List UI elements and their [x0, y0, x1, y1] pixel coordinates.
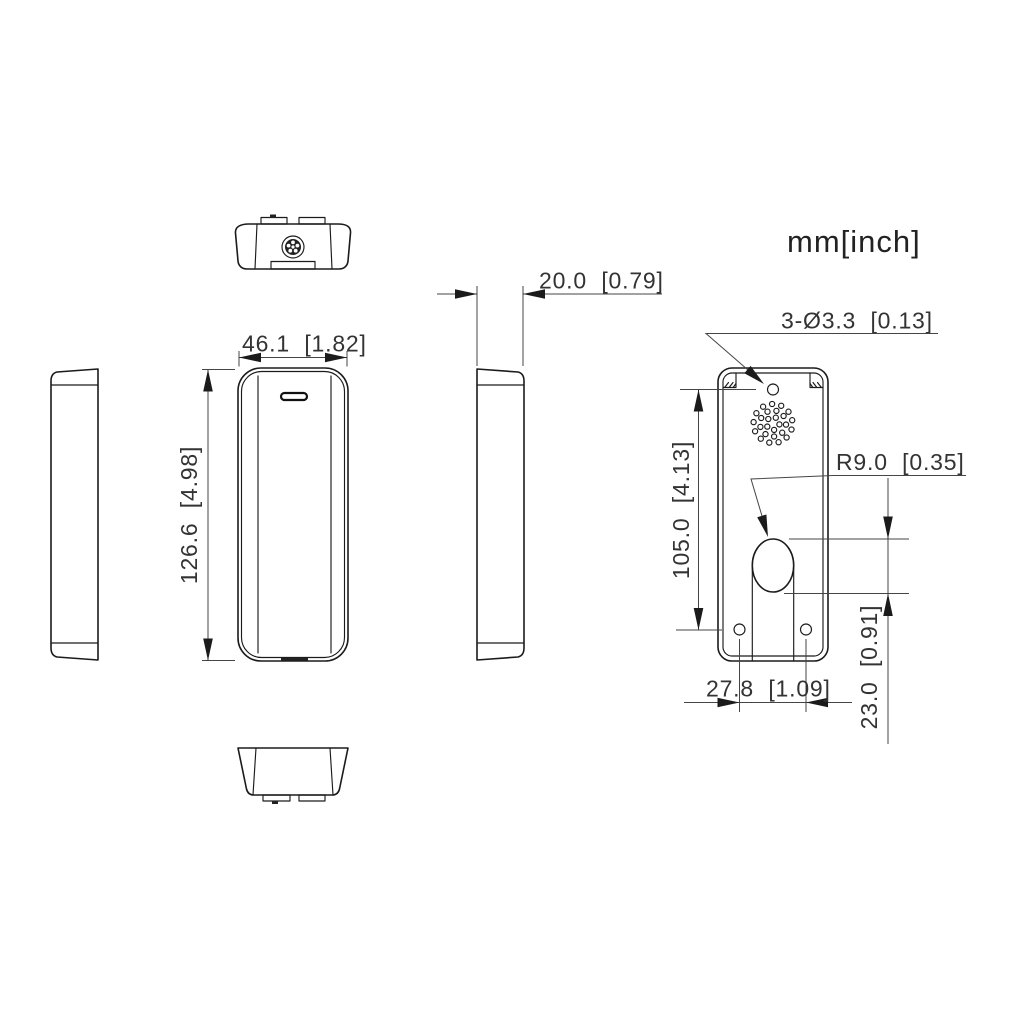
dim-height-text: 126.6 [4.98]	[176, 446, 202, 584]
dim-height-extensions	[202, 370, 235, 661]
drawing-svg: mm[inch]	[0, 0, 1024, 1024]
back-outer	[718, 368, 828, 661]
top-tab-left	[261, 218, 287, 225]
corner-rib-right	[810, 373, 823, 388]
dim-cable-hole-height: 23.0 [0.91]	[784, 478, 909, 744]
dim-cable-height-extensions	[784, 539, 909, 594]
top-tab-right	[299, 218, 325, 225]
side-view-right	[477, 369, 524, 660]
speaker-hole	[758, 424, 763, 429]
top-view	[235, 215, 350, 270]
arrow-up-icon	[203, 370, 213, 392]
speaker-hole	[765, 409, 770, 414]
dim-hole-spacing-horizontal: 27.8 [1.09]	[684, 639, 852, 712]
mounting-holes-note-text: 3-Ø3.3 [0.13]	[781, 308, 933, 334]
speaker-hole	[772, 434, 777, 439]
top-view-side-line-left	[255, 224, 257, 269]
mounting-hole-top	[768, 384, 779, 395]
arrow-up-icon	[883, 594, 893, 617]
bottom-tab-bump	[272, 801, 278, 805]
bottom-side-line-left	[253, 748, 256, 795]
bottom-tab-left	[263, 795, 290, 801]
bottom-side-line-right	[330, 748, 333, 795]
speaker-holes	[751, 401, 795, 445]
speaker-hole	[786, 409, 791, 414]
speaker-hole	[770, 401, 775, 406]
speaker-hole	[766, 416, 771, 421]
leader-arrow-icon	[757, 515, 768, 538]
front-inner	[242, 372, 345, 658]
speaker-hole	[776, 440, 781, 445]
top-tab-bump	[270, 215, 276, 219]
speaker-hole	[790, 418, 795, 423]
corner-rib-left	[723, 373, 736, 388]
cable-radius-leader	[751, 476, 833, 517]
front-view	[238, 368, 348, 661]
speaker-hole	[751, 420, 756, 425]
dim-vspacing-text: 105.0 [4.13]	[668, 441, 694, 579]
cable-hole-slot	[752, 539, 793, 661]
mounting-holes-leader	[706, 334, 938, 371]
side-view-left	[51, 369, 98, 660]
top-view-side-line-right	[330, 224, 332, 269]
units-label: mm[inch]	[787, 224, 921, 259]
dim-cable-height-text: 23.0 [0.91]	[856, 605, 882, 730]
bottom-view	[238, 748, 348, 804]
mounting-hole-bottom-left	[734, 624, 745, 635]
dim-depth-text: 20.0 [0.79]	[539, 268, 664, 294]
speaker-hole	[784, 435, 789, 440]
tamper-screw	[282, 236, 304, 258]
back-inner	[723, 373, 823, 656]
mounting-hole-bottom-right	[801, 624, 812, 635]
speaker-hole	[779, 403, 784, 408]
speaker-hole	[758, 436, 763, 441]
speaker-hole	[763, 432, 768, 437]
arrow-down-icon	[883, 517, 893, 540]
dimension-drawing: mm[inch]	[0, 0, 1024, 1024]
dim-width-text: 46.1 [1.82]	[242, 331, 367, 357]
speaker-hole	[780, 430, 785, 435]
cable-hole	[752, 539, 793, 592]
speaker-hole	[783, 422, 788, 427]
speaker-hole	[761, 404, 766, 409]
speaker-hole	[767, 440, 772, 445]
side-left-body	[51, 369, 98, 660]
arrow-down-icon	[694, 608, 704, 630]
speaker-hole	[765, 424, 770, 429]
speaker-hole	[753, 429, 758, 434]
speaker-hole	[789, 427, 794, 432]
speaker-hole	[772, 427, 777, 432]
speaker-hole	[777, 422, 782, 427]
speaker-hole	[773, 415, 778, 420]
speaker-hole	[754, 411, 759, 416]
dim-depth-extensions	[477, 286, 523, 366]
arrow-up-icon	[694, 390, 704, 412]
dim-hole-spacing-vertical: 105.0 [4.13]	[668, 390, 756, 631]
note-cable-hole-radius: R9.0 [0.35]	[751, 449, 966, 537]
dim-depth: 20.0 [0.79]	[437, 268, 664, 367]
top-recess	[271, 262, 315, 270]
dim-hspacing-text: 27.8 [1.09]	[706, 676, 831, 702]
led-indicator-slot	[281, 393, 307, 400]
dim-height: 126.6 [4.98]	[176, 370, 235, 661]
speaker-hole	[781, 413, 786, 418]
arrow-right-icon	[455, 289, 477, 299]
speaker-hole	[774, 408, 779, 413]
back-view	[718, 368, 828, 661]
cable-radius-text: R9.0 [0.35]	[836, 449, 965, 475]
bottom-tab-right	[299, 795, 325, 801]
dim-width: 46.1 [1.82]	[239, 331, 367, 367]
side-right-body	[477, 369, 524, 660]
arrow-down-icon	[203, 639, 213, 661]
speaker-hole	[759, 415, 764, 420]
